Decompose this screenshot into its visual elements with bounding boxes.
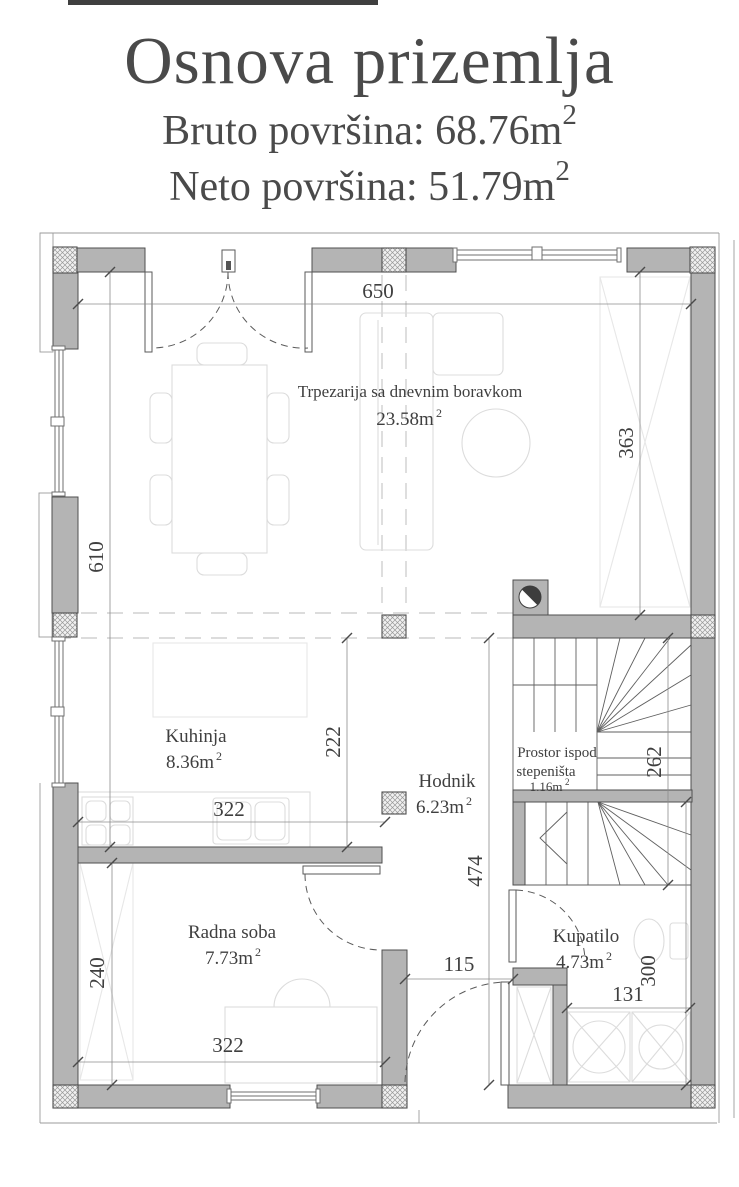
- dimension-living-height: 610: [84, 267, 115, 852]
- shower: [568, 1012, 630, 1082]
- chair: [197, 553, 247, 575]
- toilet-tank: [670, 923, 688, 959]
- room-area: 8.36m: [166, 752, 214, 773]
- dimension-kitchen-depth: 222: [321, 633, 352, 852]
- room-area: 4.73m: [556, 952, 604, 973]
- dimension-label: 300: [636, 955, 660, 987]
- room-label-living: Trpezarija sa dnevnim boravkom 23.58m 2: [298, 382, 523, 430]
- scan-artifact-bar: [68, 0, 378, 5]
- room-name: Trpezarija sa dnevnim boravkom: [298, 382, 523, 401]
- window-left-lower: [51, 637, 65, 787]
- study-door: [303, 866, 381, 950]
- door-leaf: [303, 866, 380, 874]
- niche: [517, 987, 551, 1083]
- room-area-sup: 2: [606, 949, 612, 963]
- dimension-label: 363: [614, 427, 638, 459]
- dimension-wardrobe-height: 363: [614, 267, 645, 620]
- dimension-bathroom-width: 131: [562, 982, 695, 1013]
- room-area: 23.58m: [376, 409, 434, 430]
- upper-floor-projection-lines: [55, 275, 513, 638]
- dimension-study-width: 322: [73, 1033, 390, 1067]
- dimension-label: 322: [212, 1033, 244, 1057]
- room-label-bathroom: Kupatilo 4.73m 2: [553, 926, 620, 973]
- sofa: [360, 313, 433, 550]
- floor-plan-drawing: 650 610 363 222 322 474: [0, 0, 739, 1187]
- desk-chair: [274, 979, 330, 1007]
- chair: [197, 343, 247, 365]
- round-table: [462, 409, 530, 477]
- room-label-study: Radna soba 7.73m 2: [188, 922, 277, 969]
- room-label-kitchen: Kuhinja 8.36m 2: [165, 726, 227, 773]
- living-furniture: [360, 277, 690, 607]
- walls: [52, 248, 715, 1108]
- dimension-study-height: 240: [85, 858, 117, 1090]
- floor-plan-page: Osnova prizemlja Bruto površina: 68.76m2…: [0, 0, 739, 1187]
- burner: [110, 825, 130, 845]
- chair: [150, 475, 172, 525]
- room-area: 1.16m: [530, 779, 563, 794]
- door-leaf: [509, 890, 516, 962]
- room-name: Kuhinja: [165, 726, 227, 747]
- burner: [86, 825, 106, 845]
- door-astragal-detail: [226, 261, 231, 270]
- chair: [150, 393, 172, 443]
- room-area-sup: 2: [216, 749, 222, 763]
- chair: [267, 393, 289, 443]
- door-leaf: [501, 982, 509, 1085]
- kitchen-island: [153, 643, 307, 717]
- dimension-label: 240: [85, 957, 109, 989]
- dimension-label: 610: [84, 541, 108, 573]
- washing-machine: [632, 1012, 690, 1082]
- desk: [225, 1007, 377, 1083]
- dining-furniture: [150, 343, 289, 575]
- window-top: [453, 247, 621, 262]
- dining-table: [172, 365, 267, 553]
- kitchen-counter: [78, 792, 310, 847]
- dimension-living-width: 650: [73, 279, 696, 309]
- room-name: Hodnik: [419, 771, 477, 792]
- dimension-hall-length: 474: [463, 633, 494, 1090]
- room-name: Kupatilo: [553, 926, 620, 947]
- dimension-stairs-length: 262: [642, 633, 673, 890]
- dimension-label: 474: [463, 855, 487, 887]
- dimension-label: 262: [642, 746, 666, 778]
- dimension-label: 222: [321, 726, 345, 758]
- burner: [86, 801, 106, 821]
- room-label-understairs: Prostor ispod stepeništa 1.16m 2: [516, 745, 597, 794]
- dimension-label: 322: [213, 797, 245, 821]
- chair: [267, 475, 289, 525]
- room-area-sup: 2: [436, 406, 442, 420]
- door-leaf: [305, 272, 312, 352]
- dimension-label: 115: [444, 952, 475, 976]
- stair-direction-arrow: [540, 812, 567, 864]
- room-name: Radna soba: [188, 922, 277, 943]
- window-left-upper: [51, 346, 65, 496]
- room-area-sup: 2: [466, 794, 472, 808]
- window-bottom: [227, 1089, 320, 1103]
- dimension-label: 650: [362, 279, 394, 303]
- main-entrance-door: [405, 982, 509, 1085]
- entry-double-door: [145, 250, 312, 352]
- sink-basin: [255, 802, 285, 840]
- dimension-entry-width: 115: [400, 952, 518, 984]
- chimney-symbol: [519, 586, 541, 608]
- sofa-corner: [433, 313, 503, 375]
- room-area: 7.73m: [205, 948, 253, 969]
- room-area: 6.23m: [416, 797, 464, 818]
- room-name-line1: Prostor ispod: [517, 745, 597, 761]
- burner: [110, 801, 130, 821]
- door-leaf: [145, 272, 152, 352]
- room-label-hall: Hodnik 6.23m 2: [416, 771, 476, 818]
- room-area-sup: 2: [255, 945, 261, 959]
- room-area-sup: 2: [565, 777, 570, 787]
